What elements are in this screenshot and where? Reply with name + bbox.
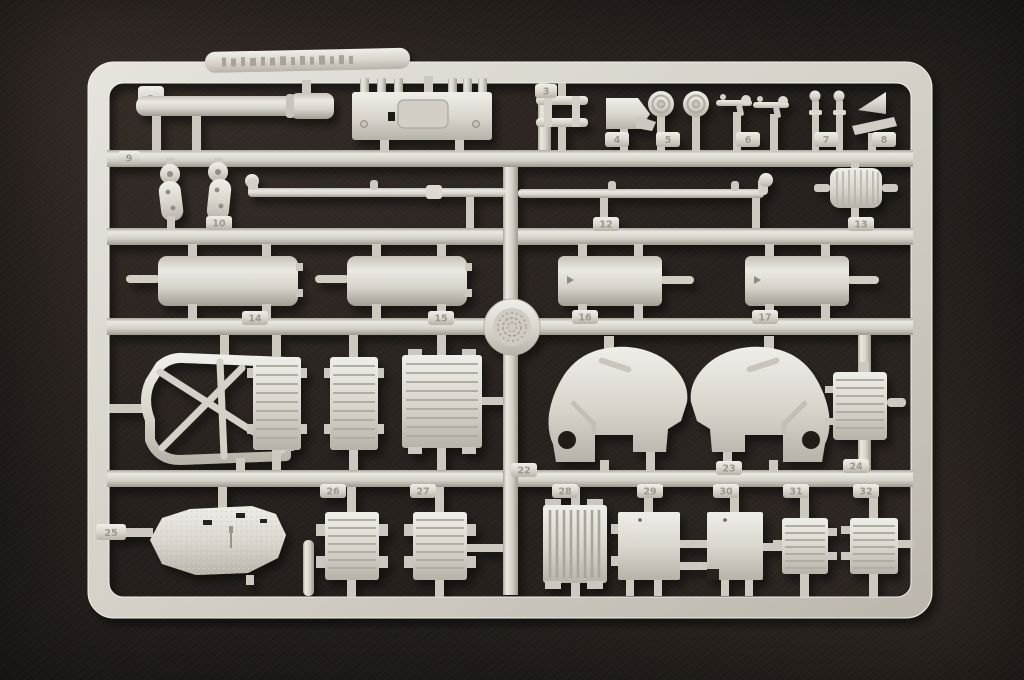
shield-bottom-stub (600, 460, 609, 472)
vent-body (543, 505, 607, 583)
plate-link (680, 540, 707, 548)
hull-plate-texture (150, 506, 286, 575)
part-number-tab: 12 (599, 220, 612, 231)
ladder-rung (544, 96, 552, 127)
part-number-tab: 17 (758, 313, 771, 324)
louver-body (253, 357, 301, 450)
hull-roof-plate-part (109, 487, 286, 585)
small-ribbed-hatch-part (841, 487, 913, 597)
part-number-tab: 6 (745, 135, 752, 146)
wheel-stem (692, 114, 700, 152)
barrel-support-stub (192, 112, 201, 152)
hatch-body (833, 372, 887, 440)
tank-up-stub (634, 244, 643, 258)
runner-horizontal-1 (107, 150, 913, 167)
tank-up-stub (372, 244, 381, 258)
ribbed-hatch-part (825, 362, 906, 440)
bracket-flag (858, 92, 886, 114)
plate-corner-notch (707, 569, 719, 580)
gun-shield-right-part (691, 336, 830, 472)
rod-hook-end (759, 173, 773, 187)
lever-hole (219, 204, 224, 209)
deck-plate-part (352, 76, 492, 152)
grille-top-stub (435, 487, 444, 512)
sprue: 1 (88, 48, 932, 618)
part-number-tab: 27 (416, 487, 429, 498)
wheel-hub (693, 101, 700, 108)
part-number-tab: 22 (517, 466, 530, 477)
hatch-ribs (785, 526, 825, 568)
connecting-rod-part (303, 540, 314, 596)
part-number-tab: 7 (823, 135, 830, 146)
tank-rod (660, 276, 694, 284)
tank-clip (465, 263, 472, 271)
tank-body (347, 256, 467, 306)
part-number-tab: 31 (789, 487, 802, 498)
bolt-collar (809, 110, 822, 115)
grille-top-stub (347, 487, 356, 512)
hull-peg (229, 526, 233, 533)
part-number-tab: 29 (643, 487, 656, 498)
plate-edge-tab (611, 524, 618, 534)
mg-drum (741, 95, 751, 105)
barrel-support-stub (152, 112, 161, 152)
deck-bottom-stub (380, 140, 389, 152)
deck-hole (473, 121, 480, 128)
rod-down-stub (466, 197, 474, 228)
tank-up-stub (262, 244, 271, 258)
plate-leg (745, 580, 753, 596)
barrel-collar (286, 94, 294, 118)
tank-up-stub (188, 244, 197, 258)
part-number-tab: 24 (849, 462, 863, 473)
rod-down-stub (752, 198, 760, 228)
deck-bottom-stub (455, 140, 464, 152)
part-number-tab: 9 (126, 154, 133, 165)
clamped-grille-part (404, 487, 503, 597)
ladder-bottom-stub (558, 127, 566, 152)
plate-body (618, 512, 680, 580)
grille-side-link (467, 544, 503, 552)
bolt-head (810, 91, 821, 102)
ladder-rail (536, 118, 588, 127)
rod-shaft (248, 188, 506, 197)
grille-body (325, 512, 379, 580)
part-number-tab: 5 (665, 135, 672, 146)
part-number-tab: 13 (854, 220, 867, 231)
tank-rod (847, 276, 879, 284)
clamped-grille-part (316, 487, 388, 597)
deck-hole (361, 121, 368, 128)
plate-leg (721, 580, 729, 596)
tank-up-stub (437, 244, 446, 258)
tank-rod (315, 275, 349, 283)
tank-up-stub (578, 244, 587, 258)
mounting-plate-part (611, 487, 707, 596)
plate-body (830, 168, 882, 208)
louver-tab (301, 368, 307, 378)
louver-tab (378, 424, 384, 434)
hull-top-stub (218, 487, 227, 509)
plate-leg (654, 580, 662, 596)
rod-nub (370, 180, 378, 190)
mg-sight (720, 94, 726, 100)
hatch-hinge (841, 526, 850, 534)
tank-rod (126, 275, 160, 283)
ladder-top-stub (558, 83, 566, 98)
louver-top-stub (437, 335, 446, 356)
louver-tab (324, 368, 330, 378)
tank-down-stub (821, 304, 830, 320)
fuel-tank-part (126, 244, 303, 320)
part-number-tab: 28 (558, 487, 572, 498)
tank-clip (296, 289, 303, 297)
barrel-tube (136, 96, 296, 116)
small-ribbed-hatch-part (773, 487, 837, 597)
louver-body (330, 357, 378, 450)
plate-edge-tab (611, 556, 618, 566)
louver-top-stub (349, 335, 358, 358)
bolt-head (834, 91, 845, 102)
part-number-tab: 10 (212, 219, 226, 230)
louver-side-link (482, 397, 503, 405)
grille-body (413, 512, 467, 580)
hatch-side-nub (887, 398, 906, 407)
part-number-tab: 23 (722, 464, 735, 475)
hatch-clamp (828, 528, 837, 536)
hull-slot (203, 520, 212, 525)
part-number-tab: 32 (859, 487, 872, 498)
louver-bottom-stub (349, 450, 358, 470)
mg-drum (778, 96, 788, 106)
louver-bottom-stub (272, 450, 281, 470)
part-number-tab: 4 (614, 135, 621, 146)
torsion-rod-left-part (245, 174, 506, 228)
tank-down-stub (188, 304, 197, 320)
rod-nub (731, 181, 739, 191)
louver-bottom-stub (437, 448, 446, 470)
part-number-tab: 30 (719, 487, 733, 498)
gun-shield-left-part (549, 336, 688, 472)
gun-barrel-part (136, 80, 334, 152)
rod-shaft (518, 189, 764, 198)
hull-slot (236, 513, 245, 518)
louver-tab (301, 424, 307, 434)
louver-panel-part (324, 335, 384, 470)
embossed-code-tab (205, 48, 410, 73)
plate-hole (638, 518, 642, 522)
tank-down-stub (634, 304, 643, 320)
tank-body (558, 256, 662, 306)
shield-hole (558, 431, 576, 449)
part-number-tab: 8 (881, 135, 888, 146)
lever-knuckle-hole (167, 171, 173, 177)
hatch-ribs (853, 526, 895, 568)
hatch-ribs (836, 380, 884, 428)
fuel-tank-part (558, 244, 694, 320)
moulding-medallion (484, 299, 540, 355)
photo-page: { "meta": { "domain": "photograph", "sub… (0, 0, 1024, 680)
rod-body (303, 540, 314, 596)
bolt-collar (833, 110, 846, 115)
runner-vertical-center (503, 167, 518, 595)
hatch-hinge (825, 386, 833, 393)
hatch-bottom-stub (800, 574, 809, 597)
part-number-tab: 16 (578, 313, 592, 324)
grille-ribs (328, 520, 376, 568)
louver-body (402, 355, 482, 448)
lever-knuckle-hole (215, 169, 221, 175)
hatch-bottom-stub (869, 574, 878, 597)
grille-ribs (416, 520, 464, 568)
rod-nub (608, 181, 616, 191)
tank-clip (465, 289, 472, 297)
vent-corner-pad (545, 581, 561, 589)
hatch-clamp (841, 552, 850, 560)
road-wheel-part (683, 91, 709, 152)
hatch-side-nub (773, 540, 782, 548)
deck-slot (388, 112, 395, 121)
hatch-hinge (825, 418, 833, 425)
tank-down-stub (372, 304, 381, 320)
shield-bottom-stub (646, 452, 655, 471)
cradle-bottom-stub (236, 458, 245, 471)
grille-bottom-stub (347, 580, 356, 597)
rod-collar (426, 185, 442, 199)
deck-recess (398, 100, 448, 128)
vent-bottom-stub (571, 583, 580, 597)
hull-bottom-nub (246, 575, 254, 585)
part-number-tab: 26 (326, 487, 340, 498)
wheel-hub (658, 101, 665, 108)
sprue-photo: 1 (0, 0, 1024, 680)
louver-panel-wide-part (402, 335, 503, 470)
hatch-side-link (898, 540, 913, 548)
fuel-tank-part (745, 244, 879, 320)
plate-leg (626, 580, 634, 596)
louver-tab (324, 424, 330, 434)
louver-corner-pad (408, 447, 422, 454)
torsion-rod-right-part (518, 173, 773, 228)
louver-top-stub (272, 335, 281, 358)
part-number-tab: 3 (543, 87, 550, 98)
mg-stem (770, 114, 778, 152)
part-number-tab: 25 (104, 528, 117, 539)
tank-clip (296, 263, 303, 271)
slatted-vent-part (543, 487, 607, 597)
plate-side-stub (882, 184, 898, 192)
plate-side-stub (814, 184, 830, 192)
tank-up-stub (765, 244, 774, 258)
louver-panel-part (247, 335, 307, 470)
louver-tab (247, 368, 253, 378)
grille-bottom-stub (435, 580, 444, 597)
lever-hole (171, 206, 176, 211)
fuel-tank-part (315, 244, 472, 320)
plate-link (680, 562, 707, 570)
part-number-tab: 14 (248, 314, 262, 325)
lever-hole (166, 190, 171, 195)
louver-tab (247, 424, 253, 434)
louver-corner-pad (408, 349, 422, 356)
hull-peg-line (230, 533, 232, 548)
hull-slot (260, 519, 267, 523)
tank-body (745, 256, 849, 306)
louver-corner-pad (462, 349, 476, 356)
lever-shaft (167, 216, 175, 230)
part-number-tab: 15 (434, 314, 447, 325)
lever-body (158, 180, 185, 222)
lever-hole (215, 188, 220, 193)
ladder-rung (572, 96, 580, 127)
louver-corner-pad (462, 447, 476, 454)
tank-body (158, 256, 298, 306)
plate-hole (723, 518, 727, 522)
lever-body (206, 178, 232, 222)
suspension-lever-part (158, 158, 185, 230)
vent-corner-pad (587, 581, 603, 589)
barrel-sleeve (290, 93, 334, 119)
tank-up-stub (821, 244, 830, 258)
mg-sight (757, 96, 763, 102)
louver-tab (378, 368, 384, 378)
hatch-clamp (828, 552, 837, 560)
